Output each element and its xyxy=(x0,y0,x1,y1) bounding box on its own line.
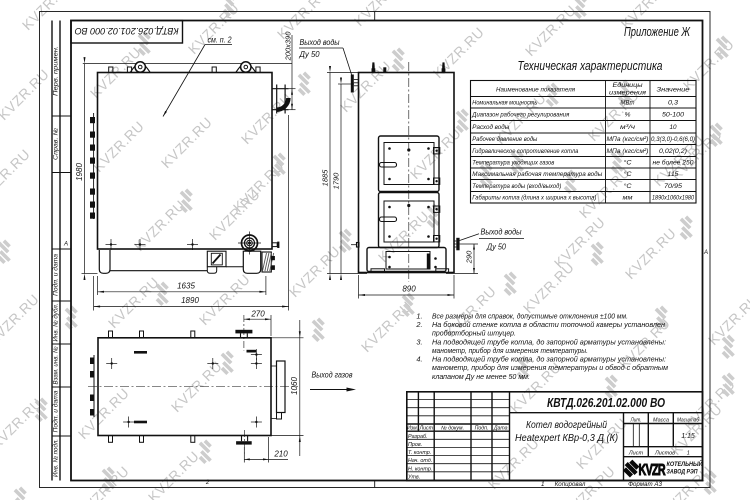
svg-text:1890х1060х1980: 1890х1060х1980 xyxy=(652,195,694,202)
svg-text:1790: 1790 xyxy=(331,172,340,190)
svg-text:Температура уходящих газов: Температура уходящих газов xyxy=(472,159,554,167)
svg-text:клапаном Ду не менее 50 мм.: клапаном Ду не менее 50 мм. xyxy=(432,372,530,381)
svg-text:МВт: МВт xyxy=(621,100,635,107)
svg-text:Масса: Масса xyxy=(653,418,669,424)
svg-text:Лист: Лист xyxy=(419,425,434,431)
svg-text:2: 2 xyxy=(205,480,210,486)
svg-text:Выход воды: Выход воды xyxy=(481,228,522,237)
svg-text:°С: °С xyxy=(624,159,632,167)
svg-text:Ду 50: Ду 50 xyxy=(299,50,320,59)
svg-text:3.: 3. xyxy=(416,337,422,346)
svg-text:50-100: 50-100 xyxy=(662,112,684,119)
svg-text:Ду 50: Ду 50 xyxy=(486,243,506,252)
svg-text:Инв. № дубл.: Инв. № дубл. xyxy=(53,304,60,342)
svg-text:мм: мм xyxy=(623,195,633,202)
svg-text:Котел водогрейный: Котел водогрейный xyxy=(526,419,607,431)
svg-text:Выход газов: Выход газов xyxy=(312,371,354,380)
svg-text:270: 270 xyxy=(250,309,265,318)
svg-text:70/95: 70/95 xyxy=(664,183,682,190)
svg-text:%: % xyxy=(625,112,631,119)
svg-text:Утв.: Утв. xyxy=(407,474,420,480)
svg-text:2.: 2. xyxy=(415,320,422,329)
svg-text:0,02(0,2): 0,02(0,2) xyxy=(659,148,687,155)
svg-text:Формат А3: Формат А3 xyxy=(628,481,662,488)
svg-text:10: 10 xyxy=(670,124,677,131)
svg-text:Пров.: Пров. xyxy=(408,442,422,448)
svg-text:см. п. 2: см. п. 2 xyxy=(208,36,232,45)
svg-text:Максимальная рабочая температу: Максимальная рабочая температура воды xyxy=(472,170,602,178)
svg-text:Приложение Ж: Приложение Ж xyxy=(624,24,691,39)
svg-text:115: 115 xyxy=(668,171,679,178)
svg-text:№ докум.: № докум. xyxy=(441,425,464,431)
svg-text:МПа (кгс/см²): МПа (кгс/см²) xyxy=(607,136,649,143)
svg-text:Разраб.: Разраб. xyxy=(408,434,428,440)
svg-text:0,3(3,0)-0,6(6,0): 0,3(3,0)-0,6(6,0) xyxy=(651,136,695,143)
svg-text:Подп.: Подп. xyxy=(475,425,489,431)
svg-text:Наименование показателя: Наименование показателя xyxy=(496,87,575,94)
svg-text:1890: 1890 xyxy=(181,296,199,305)
svg-text:Изм.: Изм. xyxy=(407,425,418,431)
svg-text:Взам. инв. №: Взам. инв. № xyxy=(53,346,60,384)
svg-text:Копировал: Копировал xyxy=(555,481,586,488)
svg-text:1885: 1885 xyxy=(320,169,329,187)
svg-text:Габариты котла (длина х ширина: Габариты котла (длина х ширина х высота) xyxy=(472,194,596,202)
svg-text:210: 210 xyxy=(273,450,288,459)
svg-text:1060: 1060 xyxy=(290,377,299,395)
svg-text:Единицы: Единицы xyxy=(613,81,643,89)
svg-text:0,3: 0,3 xyxy=(668,100,678,107)
svg-text:измерения: измерения xyxy=(609,90,646,97)
svg-text:КВТД.026.201.02.000 ВО: КВТД.026.201.02.000 ВО xyxy=(74,25,179,36)
svg-text:Диапазон рабочего регулировани: Диапазон рабочего регулирования xyxy=(471,111,569,119)
svg-text:890: 890 xyxy=(402,285,416,294)
svg-text:Т. контр.: Т. контр. xyxy=(408,450,431,456)
svg-text:Инв. № подл.: Инв. № подл. xyxy=(53,439,60,477)
svg-text:КОТЕЛЬНЫЙ: КОТЕЛЬНЫЙ xyxy=(667,460,704,468)
svg-text:Температура воды (вход/выход): Температура воды (вход/выход) xyxy=(472,182,561,190)
svg-text:1: 1 xyxy=(687,451,690,457)
svg-text:Лит.: Лит. xyxy=(630,418,642,424)
svg-text:Перв. примен.: Перв. примен. xyxy=(53,46,60,96)
svg-text:А: А xyxy=(63,242,68,248)
svg-text:Масштаб: Масштаб xyxy=(677,418,700,424)
svg-text:Heatexpert КВр-0,3 Д (К): Heatexpert КВр-0,3 Д (К) xyxy=(515,432,618,444)
svg-text:1:15: 1:15 xyxy=(681,433,695,440)
svg-text:А: А xyxy=(703,250,708,256)
svg-text:290: 290 xyxy=(465,250,474,264)
svg-text:Нач. отд.: Нач. отд. xyxy=(408,458,432,464)
svg-text:°С: °С xyxy=(624,170,632,178)
svg-text:Подп. и дата: Подп. и дата xyxy=(53,253,60,296)
svg-text:Н. контр.: Н. контр. xyxy=(408,466,432,472)
svg-text:ЗАВОД РЭП: ЗАВОД РЭП xyxy=(667,470,699,476)
svg-text:200х390: 200х390 xyxy=(283,31,292,62)
svg-text:4.: 4. xyxy=(416,355,422,364)
svg-text:Расход воды: Расход воды xyxy=(472,123,509,131)
svg-text:Техническая характеристика: Техническая характеристика xyxy=(518,58,663,73)
svg-text:МПа (кгс/см²): МПа (кгс/см²) xyxy=(607,148,649,155)
svg-text:Гидравлическое сопротивление к: Гидравлическое сопротивление котла xyxy=(472,147,578,155)
svg-text:КВТД.026.201.02.000 ВО: КВТД.026.201.02.000 ВО xyxy=(547,396,665,410)
svg-text:не более 250: не более 250 xyxy=(653,159,694,167)
svg-text:1980: 1980 xyxy=(75,163,84,181)
svg-text:Значение: Значение xyxy=(657,87,690,94)
svg-text:Рабочее давление воды: Рабочее давление воды xyxy=(472,135,537,143)
svg-text:Дата: Дата xyxy=(493,425,508,431)
svg-text:Номинальная мощность: Номинальная мощность xyxy=(472,100,537,107)
svg-text:Подп. и дата: Подп. и дата xyxy=(53,390,60,433)
svg-text:KVZR: KVZR xyxy=(639,462,666,479)
svg-text:°С: °С xyxy=(624,182,632,190)
svg-text:Справ. №: Справ. № xyxy=(53,128,60,160)
svg-text:1635: 1635 xyxy=(177,282,195,291)
svg-text:м³/ч: м³/ч xyxy=(620,124,636,131)
svg-text:1: 1 xyxy=(541,481,544,488)
svg-text:Лист: Лист xyxy=(628,451,644,457)
svg-text:Листов: Листов xyxy=(654,451,675,457)
svg-text:Выход воды: Выход воды xyxy=(300,38,340,47)
